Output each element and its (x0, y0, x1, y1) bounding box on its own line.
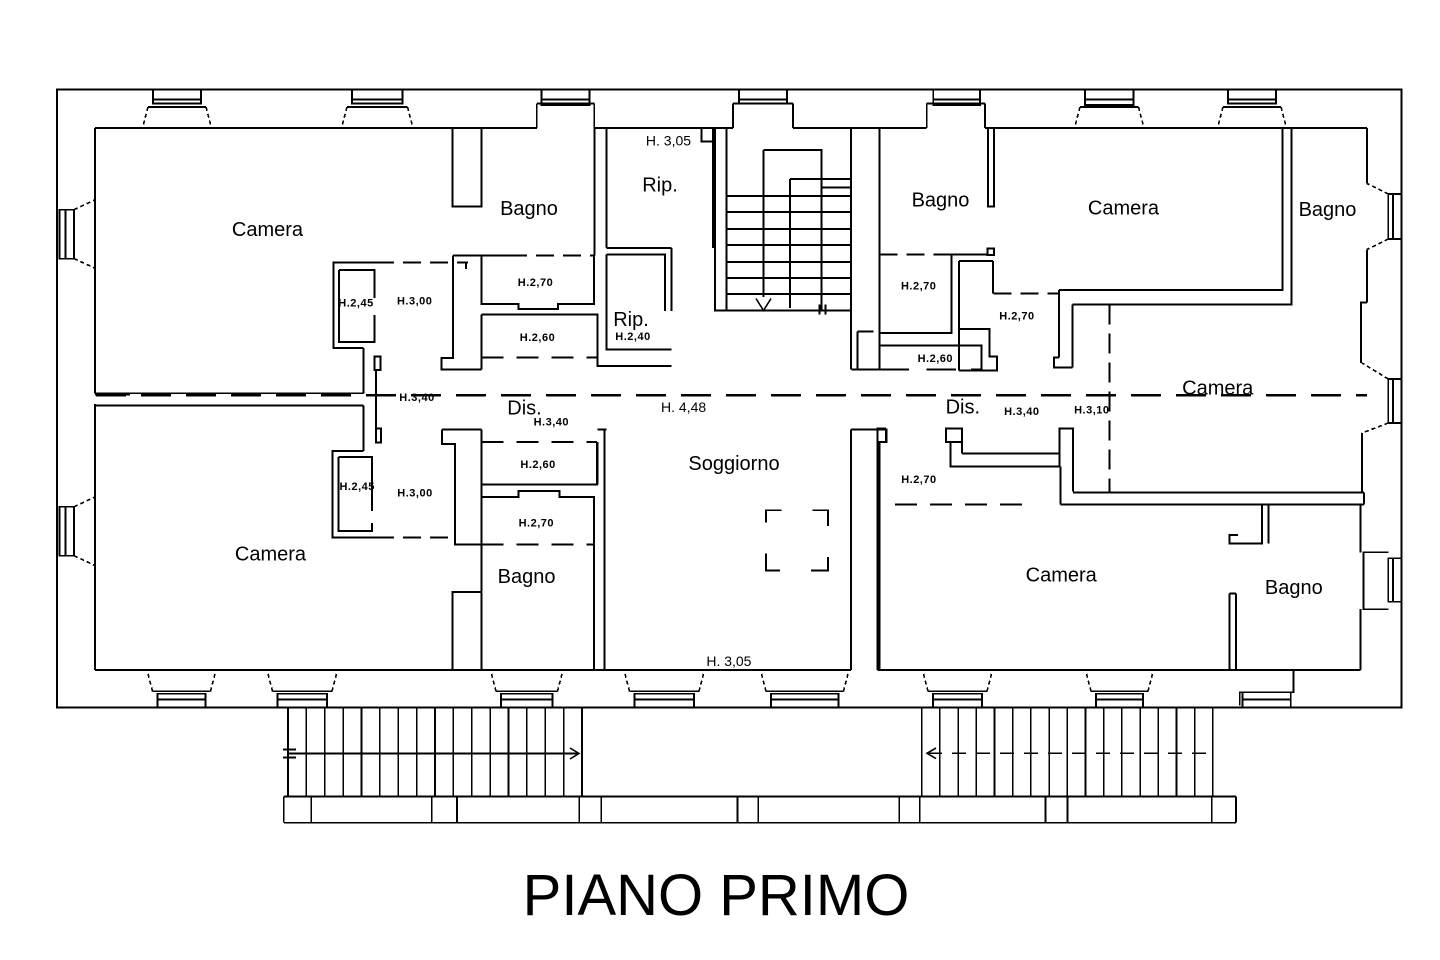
svg-text:Bagno: Bagno (1265, 577, 1323, 599)
svg-text:H.2,70: H.2,70 (901, 474, 936, 486)
svg-text:H.2,60: H.2,60 (520, 332, 555, 344)
svg-text:H.2,70: H.2,70 (519, 518, 554, 530)
svg-text:PIANO PRIMO: PIANO PRIMO (523, 863, 910, 928)
svg-text:H.2,45: H.2,45 (339, 481, 374, 493)
svg-text:Camera: Camera (1026, 565, 1098, 587)
svg-text:Bagno: Bagno (1299, 199, 1357, 221)
svg-text:Bagno: Bagno (498, 566, 556, 588)
svg-text:H.3,40: H.3,40 (1004, 406, 1039, 418)
svg-text:Camera: Camera (235, 544, 307, 566)
svg-text:Dis.: Dis. (946, 397, 980, 419)
svg-text:H.2,60: H.2,60 (918, 353, 953, 365)
svg-text:Camera: Camera (1088, 198, 1160, 220)
svg-text:Camera: Camera (1182, 378, 1254, 400)
svg-text:H.2,70: H.2,70 (901, 281, 936, 293)
svg-text:H.2,45: H.2,45 (338, 298, 373, 310)
svg-text:H.2,70: H.2,70 (518, 277, 553, 289)
svg-text:H. 3,05: H. 3,05 (706, 653, 751, 669)
svg-text:H.2,60: H.2,60 (520, 459, 555, 471)
svg-text:Soggiorno: Soggiorno (688, 453, 779, 475)
svg-text:Rip.: Rip. (642, 175, 678, 197)
svg-text:H.2,40: H.2,40 (615, 331, 650, 343)
svg-text:H.3,00: H.3,00 (397, 296, 432, 308)
svg-text:H.2,70: H.2,70 (999, 311, 1034, 323)
svg-text:Bagno: Bagno (912, 190, 970, 212)
svg-text:H. 3,05: H. 3,05 (646, 133, 691, 149)
svg-text:Rip.: Rip. (613, 309, 649, 331)
svg-text:H. 4,48: H. 4,48 (661, 399, 706, 415)
svg-text:Camera: Camera (232, 219, 304, 241)
svg-text:H.3,10: H.3,10 (1074, 405, 1109, 417)
svg-text:Bagno: Bagno (500, 198, 558, 220)
svg-text:H.3,40: H.3,40 (534, 417, 569, 429)
svg-text:H.3,00: H.3,00 (397, 488, 432, 500)
svg-text:H.3,40: H.3,40 (399, 392, 434, 404)
